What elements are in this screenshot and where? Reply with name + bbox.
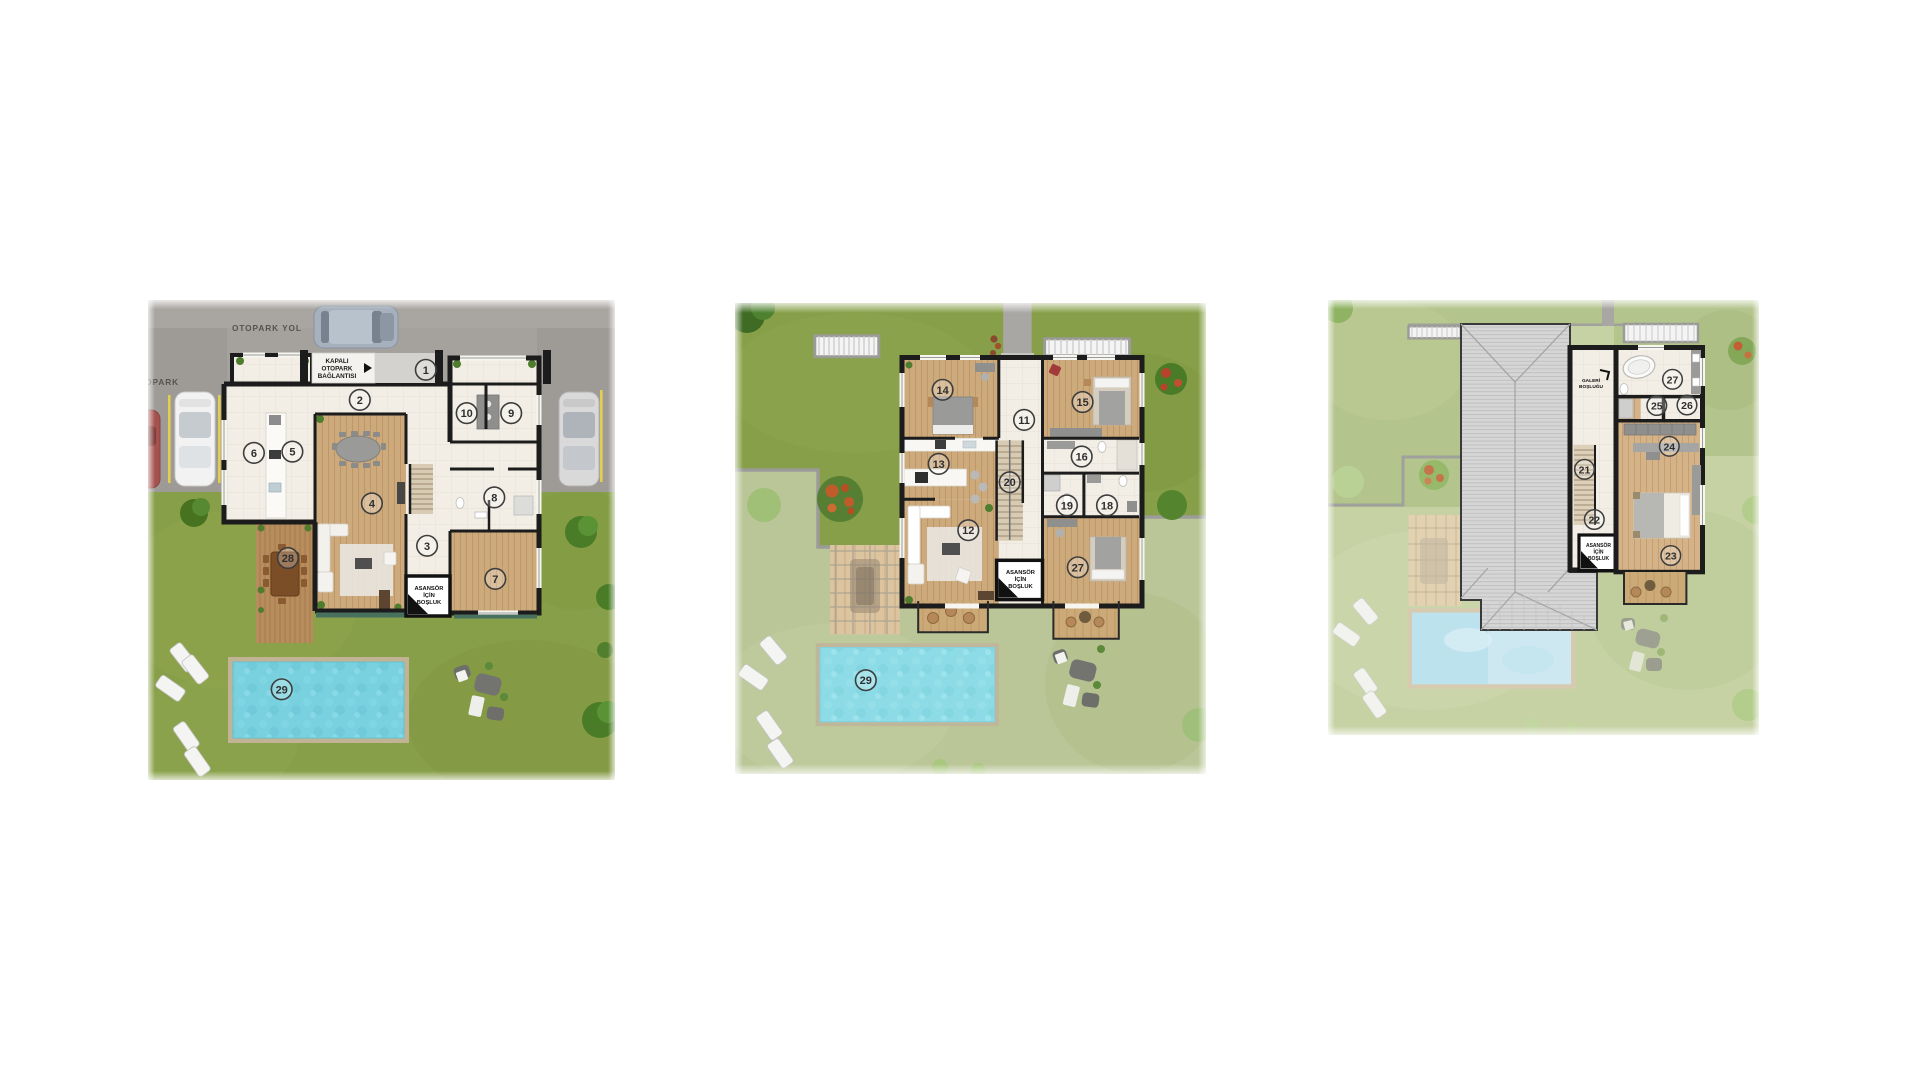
svg-text:26: 26 [1681,400,1693,412]
svg-text:İÇİN: İÇİN [1015,576,1027,583]
svg-text:14: 14 [936,385,949,397]
svg-text:5: 5 [289,447,295,459]
svg-text:GALERİ: GALERİ [1582,377,1601,384]
svg-text:11: 11 [1018,415,1030,427]
svg-text:15: 15 [1076,397,1088,409]
svg-text:İÇİN: İÇİN [423,592,435,599]
svg-text:2: 2 [357,395,363,407]
svg-text:18: 18 [1101,500,1113,512]
svg-text:ASANSÖR: ASANSÖR [415,585,445,592]
svg-text:19: 19 [1061,500,1073,512]
svg-text:BOŞLUK: BOŞLUK [417,600,442,606]
svg-text:13: 13 [933,459,945,471]
svg-text:29: 29 [860,675,872,687]
svg-text:BOŞLUK: BOŞLUK [1008,584,1033,590]
svg-text:23: 23 [1665,551,1677,563]
svg-text:29: 29 [276,684,288,696]
svg-text:KAPALI: KAPALI [326,358,349,365]
svg-text:BAĞLANTISI: BAĞLANTISI [318,371,357,380]
svg-text:25: 25 [1651,401,1663,413]
svg-text:ASANSÖR: ASANSÖR [1586,542,1611,549]
svg-text:İÇİN: İÇİN [1594,549,1604,556]
svg-text:16: 16 [1076,452,1088,464]
svg-text:27: 27 [1072,562,1084,574]
svg-text:24: 24 [1663,441,1675,453]
svg-text:6: 6 [251,448,257,460]
svg-text:4: 4 [369,498,376,510]
svg-text:28: 28 [282,553,294,565]
svg-text:27: 27 [1667,374,1679,386]
svg-text:10: 10 [461,408,473,420]
svg-text:22: 22 [1588,515,1600,527]
svg-text:ASANSÖR: ASANSÖR [1006,569,1036,576]
svg-text:12: 12 [962,525,974,537]
svg-text:20: 20 [1004,477,1016,489]
svg-text:9: 9 [508,408,514,420]
svg-text:BOŞLUK: BOŞLUK [1588,556,1610,562]
svg-text:OTOPARK YOL: OTOPARK YOL [232,323,302,333]
svg-text:1: 1 [423,365,429,377]
svg-text:OTOPARK: OTOPARK [322,366,353,373]
svg-text:3: 3 [424,541,430,553]
svg-text:21: 21 [1579,464,1591,476]
svg-text:8: 8 [491,492,497,504]
svg-text:7: 7 [492,574,498,586]
